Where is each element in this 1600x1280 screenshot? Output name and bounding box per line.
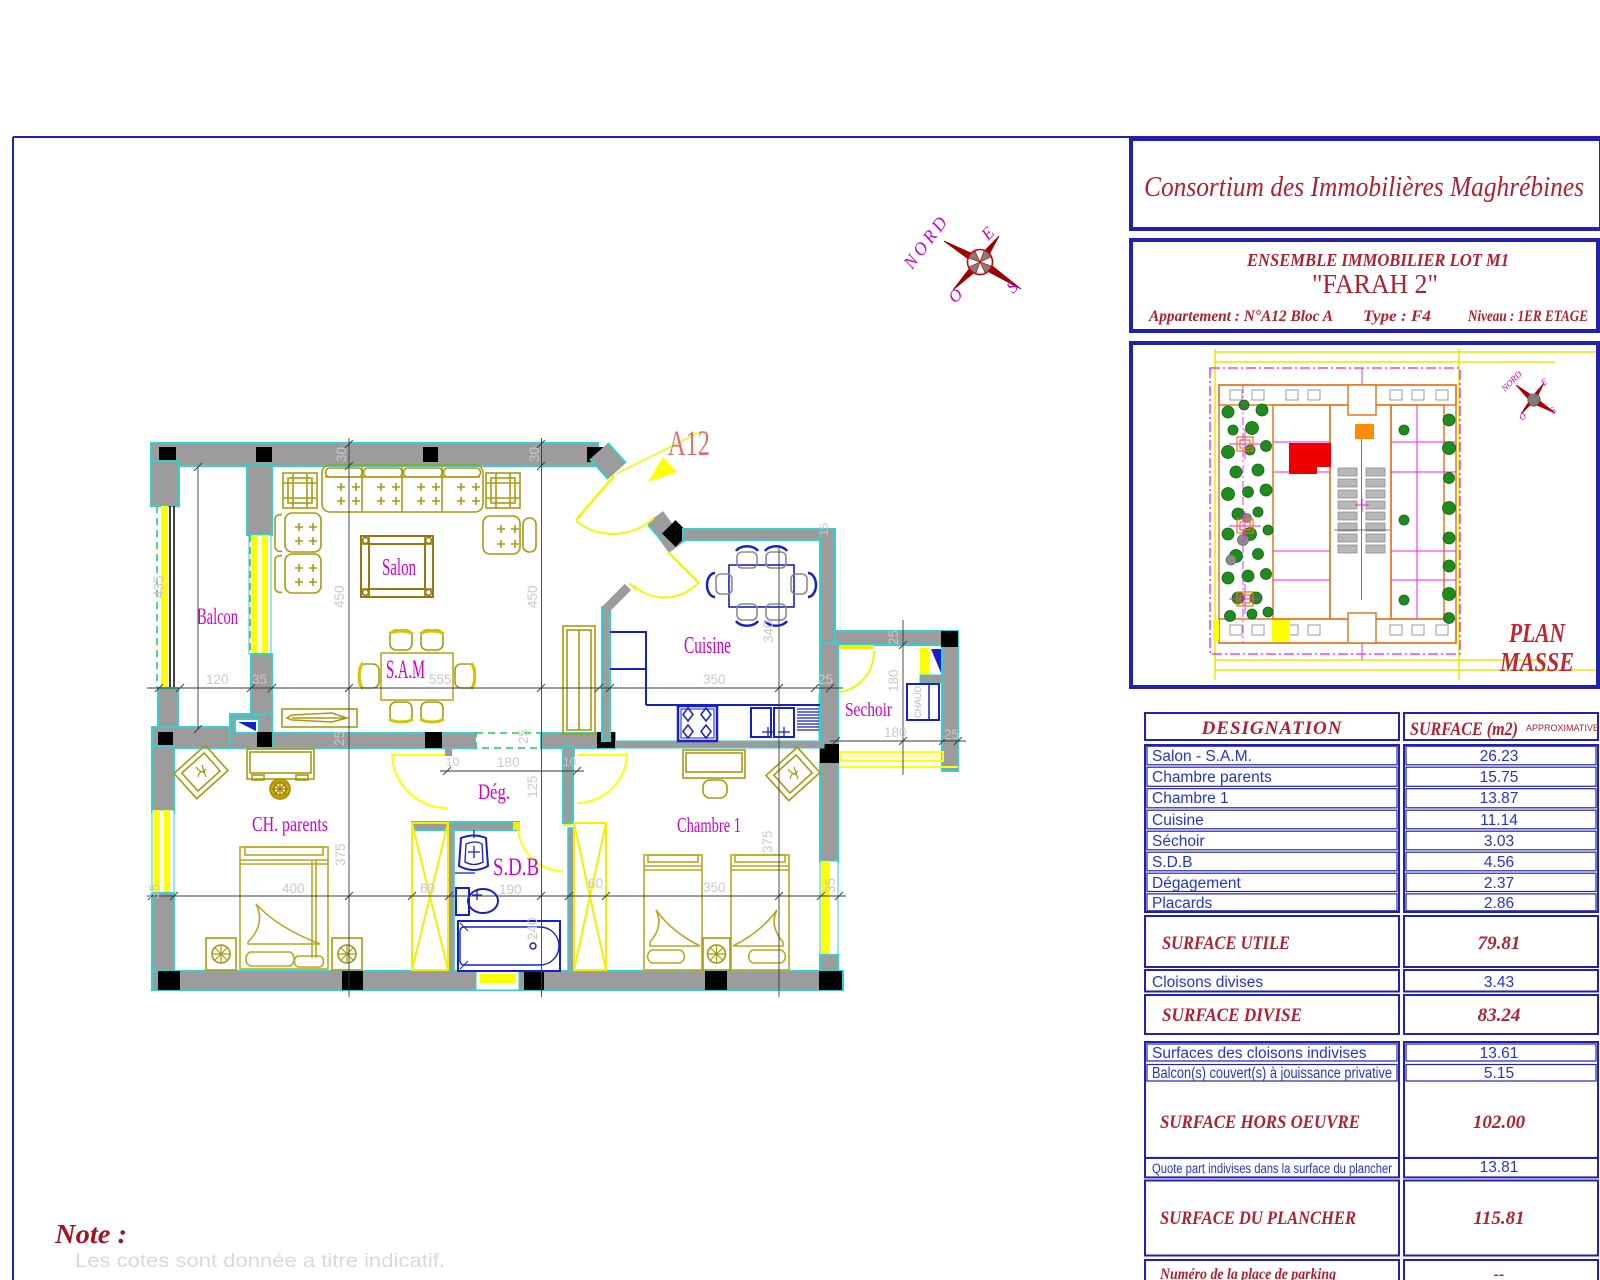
svg-text:120: 120 [206,672,229,687]
svg-text:5.15: 5.15 [1484,1065,1514,1082]
svg-text:SURFACE (m2): SURFACE (m2) [1410,719,1518,740]
svg-text:2.86: 2.86 [1484,895,1514,912]
svg-text:30: 30 [527,447,542,462]
svg-text:79.81: 79.81 [1478,933,1521,954]
svg-text:CHAUD: CHAUD [913,686,923,719]
svg-text:Chambre 1: Chambre 1 [677,813,741,837]
svg-text:25: 25 [818,672,833,687]
svg-text:125: 125 [525,775,540,798]
svg-text:A12: A12 [668,423,710,463]
svg-text:"FARAH 2": "FARAH 2" [1312,269,1438,299]
svg-text:--: -- [1494,1266,1505,1280]
svg-text:Salon: Salon [382,555,416,581]
svg-text:60: 60 [420,881,435,896]
svg-text:350: 350 [703,672,726,687]
svg-text:Quote part indivises dans: Quote part indivises dans la surface du … [1152,1161,1392,1176]
svg-text:25: 25 [944,727,959,742]
svg-text:Dég.: Dég. [478,779,510,804]
svg-text:APPROXIMATIVE: APPROXIMATIVE [1526,723,1599,733]
svg-text:450: 450 [332,585,347,608]
svg-text:Séchoir: Séchoir [1152,833,1205,850]
svg-text:Chambre parents: Chambre parents [1152,769,1272,786]
svg-text:350: 350 [703,880,726,895]
svg-text:450: 450 [525,585,540,608]
svg-text:115.81: 115.81 [1473,1208,1524,1229]
svg-text:555: 555 [429,672,452,687]
svg-text:60: 60 [588,876,603,891]
svg-text:190: 190 [499,882,522,897]
svg-text:Numéro de la place de par: Numéro de la place de parking [1159,1266,1336,1280]
svg-text:Cloisons divises: Cloisons divises [1152,974,1263,991]
svg-text:Note :: Note : [54,1219,127,1249]
svg-text:375: 375 [333,843,348,866]
svg-text:Consortium des Immobilières Ma: Consortium des Immobilières Maghrébines [1144,171,1584,203]
svg-text:Type : F4: Type : F4 [1363,308,1431,325]
svg-text:Cuisine: Cuisine [684,633,731,659]
svg-text:15.75: 15.75 [1480,769,1519,786]
svg-text:SURFACE UTILE: SURFACE UTILE [1162,933,1290,954]
svg-text:Balcon: Balcon [197,604,238,629]
svg-text:S: S [1002,277,1022,297]
svg-text:35: 35 [823,878,838,893]
svg-text:Cuisine: Cuisine [1152,812,1204,829]
svg-text:SURFACE HORS OEUVRE: SURFACE HORS OEUVRE [1160,1112,1360,1133]
svg-text:13.61: 13.61 [1480,1045,1519,1062]
svg-text:35: 35 [252,672,267,687]
svg-text:3.03: 3.03 [1484,833,1514,850]
svg-text:25: 25 [886,630,901,645]
svg-text:83.24: 83.24 [1478,1005,1521,1026]
svg-text:CH. parents: CH. parents [252,812,328,836]
svg-text:DESIGNATION: DESIGNATION [1201,718,1343,739]
svg-text:2.37: 2.37 [1484,875,1514,892]
svg-text:Salon - S.A.M.: Salon - S.A.M. [1152,748,1252,765]
svg-text:435: 435 [151,575,166,598]
svg-text:25: 25 [332,731,347,746]
svg-text:35: 35 [147,884,162,899]
svg-text:240: 240 [525,917,540,940]
svg-text:S.D.B: S.D.B [493,854,539,881]
svg-text:30: 30 [334,447,349,462]
svg-text:180: 180 [884,725,907,740]
svg-text:26.23: 26.23 [1480,748,1519,765]
svg-text:O: O [944,285,966,307]
svg-text:Balcon(s) couvert(s) à joui: Balcon(s) couvert(s) à jouissance privat… [1152,1065,1392,1082]
svg-text:SURFACE DU PLANCHER: SURFACE DU PLANCHER [1160,1208,1356,1229]
svg-text:Dégagement: Dégagement [1152,875,1241,892]
svg-text:180: 180 [497,755,520,770]
svg-text:102.00: 102.00 [1473,1112,1526,1133]
svg-text:25: 25 [516,729,531,744]
svg-text:Appartement : N°A12 Bloc A: Appartement : N°A12 Bloc A [1148,308,1333,325]
svg-text:MASSE: MASSE [1499,647,1574,677]
svg-text:15: 15 [817,522,831,536]
svg-text:SURFACE DIVISE: SURFACE DIVISE [1162,1005,1302,1026]
svg-text:S.D.B: S.D.B [1152,854,1192,871]
svg-text:4.56: 4.56 [1484,854,1514,871]
svg-text:340: 340 [761,620,776,643]
svg-text:Niveau : 1ER ETAGE: Niveau : 1ER ETAGE [1467,308,1588,325]
svg-text:3.43: 3.43 [1484,974,1514,991]
svg-text:Sechoir: Sechoir [845,699,892,721]
svg-text:375: 375 [760,830,775,853]
svg-text:13.81: 13.81 [1480,1159,1519,1176]
svg-text:PLAN: PLAN [1508,618,1566,648]
svg-text:180: 180 [886,669,901,692]
svg-text:Chambre 1: Chambre 1 [1152,790,1229,807]
svg-text:400: 400 [282,881,305,896]
svg-text:Placards: Placards [1152,895,1213,912]
svg-text:S.A.M: S.A.M [386,655,425,684]
svg-text:Surfaces des cloisons indiv: Surfaces des cloisons indivises [1152,1045,1367,1062]
svg-text:ENSEMBLE IMMOBILIER LOT M1: ENSEMBLE IMMOBILIER LOT M1 [1246,250,1509,270]
svg-text:11.14: 11.14 [1480,812,1518,829]
svg-text:10: 10 [563,755,577,769]
svg-text:10: 10 [446,755,460,769]
svg-text:Les cotes sont donnée a t: Les cotes sont donnée a titre indicatif. [75,1251,445,1272]
svg-text:13.87: 13.87 [1480,790,1519,807]
